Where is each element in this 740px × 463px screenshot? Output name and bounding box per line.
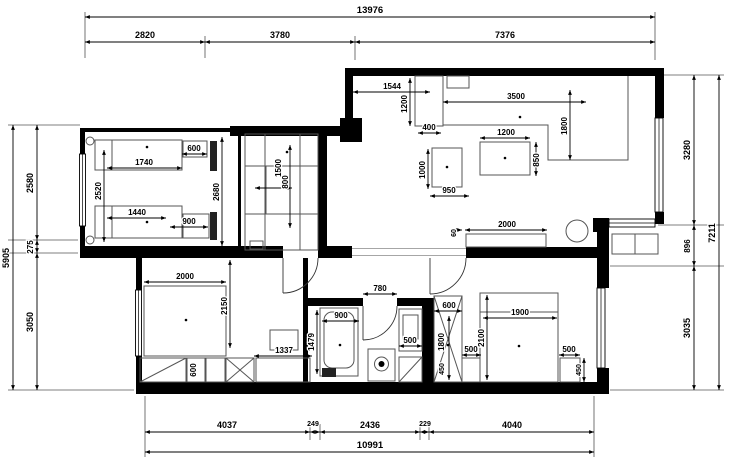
pipe: [86, 137, 94, 145]
floor-plan-canvas: 13976 2820 3780 7376 5905 2580 275 3050 …: [0, 0, 740, 463]
sideboard: [466, 234, 546, 247]
dim-left-seg3: 3050: [25, 312, 35, 332]
dim-kid-desk: 600: [187, 144, 201, 153]
dim-bottom-seg2: 249: [307, 421, 319, 428]
dim-right-seg3: 3035: [682, 318, 692, 338]
dim-fridge-width: 400: [422, 123, 436, 132]
dim-bottom-seg1: 4037: [217, 420, 237, 430]
window: [80, 154, 86, 226]
bath-cabinet-diag: [399, 357, 422, 382]
dim-kid-desk2: 900: [182, 217, 196, 226]
nightstand: [462, 358, 480, 382]
wall-segment: [593, 218, 609, 232]
wall-segment: [345, 68, 664, 76]
furniture: [86, 76, 658, 382]
bed: [144, 286, 226, 356]
dim-bottom-total: 10991: [357, 440, 384, 451]
dim-top-seg3: 7376: [495, 30, 515, 40]
vent-shaft: [447, 76, 469, 88]
dim-tub-width: 900: [334, 311, 348, 320]
dim-closet-turning: 1500: [274, 159, 283, 177]
dim-left-seg2: 275: [26, 240, 35, 254]
bathtub-inner: [324, 312, 354, 368]
dim-unit-len: 1000: [418, 161, 427, 179]
windows: [80, 118, 664, 368]
wall-segment: [397, 298, 422, 306]
window: [609, 219, 655, 227]
dim-unit-width: 950: [442, 186, 456, 195]
window: [597, 288, 605, 368]
wall-segment: [80, 246, 283, 258]
tub-end: [322, 368, 336, 377]
walls: [80, 68, 664, 394]
bed: [480, 293, 558, 382]
wall-segment: [80, 128, 85, 154]
floor-plan-drawing: 13976 2820 3780 7376 5905 2580 275 3050 …: [0, 0, 740, 463]
wall-segment: [136, 382, 608, 394]
dim-kid-width: 2520: [94, 182, 103, 200]
fridge: [415, 76, 443, 126]
wall-segment: [80, 128, 240, 132]
radiator: [210, 141, 217, 171]
dim-counter-leg: 1800: [560, 117, 569, 135]
wall-segment: [303, 258, 308, 382]
round-table: [566, 220, 588, 242]
dim-bottom-seg4: 229: [419, 421, 431, 428]
dim-bottom-seg3: 2436: [360, 420, 380, 430]
dim-bl-wardrobe: 600: [189, 363, 198, 377]
window: [655, 118, 663, 212]
dim-gap: 60: [451, 229, 458, 237]
door-bedroom-right: [430, 258, 466, 294]
dim-kitchen-entry: 1544: [383, 82, 401, 91]
dim-right-total: 7211: [707, 223, 717, 243]
window: [136, 290, 142, 356]
wall-segment: [238, 132, 241, 248]
dim-left-total: 5905: [1, 248, 11, 268]
pipe: [86, 236, 94, 244]
dim-table-width: 1200: [497, 128, 515, 137]
dim-kid-bed1: 1740: [135, 158, 153, 167]
wall-segment: [655, 212, 664, 224]
dim-bl-bed-length: 2150: [220, 297, 229, 315]
dim-fridge-depth: 1200: [400, 95, 409, 113]
washer-door-center: [379, 361, 385, 367]
dim-br-bed-length: 2100: [477, 329, 486, 347]
dim-top-seg2: 3780: [270, 30, 290, 40]
dim-left-seg1: 2580: [25, 173, 35, 193]
wall-segment: [345, 68, 353, 130]
dim-br-bed-width: 1900: [511, 308, 529, 317]
wall-segment: [422, 298, 434, 382]
dim-top-total: 13976: [357, 5, 383, 16]
dim-br-wardrobe-length: 1800: [437, 333, 446, 351]
dim-sideboard: 2000: [498, 220, 516, 229]
dim-table-depth: 850: [532, 153, 541, 167]
dim-br-wardrobe-side: 450: [439, 363, 446, 375]
dim-br-nightstand-right: 500: [562, 345, 576, 354]
wall-segment: [597, 368, 609, 394]
dim-right-seg2: 896: [683, 239, 692, 253]
wall-segment: [318, 132, 327, 258]
closet-shelving: [245, 134, 318, 250]
wardrobe-row: [140, 358, 310, 382]
kitchen-counter: [443, 76, 628, 160]
dim-basin: 500: [403, 336, 417, 345]
dim-br-nightstand-depth: 450: [576, 364, 583, 376]
door-bedroom-left: [283, 258, 318, 293]
dim-br-wardrobe-width: 600: [442, 301, 456, 310]
door-bathroom: [363, 306, 397, 340]
wall-segment: [136, 252, 142, 290]
dim-top-seg1: 2820: [135, 30, 155, 40]
dim-bl-dresser: 1337: [275, 346, 293, 355]
dim-bath-door: 780: [373, 284, 387, 293]
wall-segment: [308, 298, 363, 306]
dim-bl-bed-width: 2000: [176, 272, 194, 281]
dim-kid-length: 2680: [212, 183, 221, 201]
dim-closet-depth: 800: [281, 175, 290, 189]
radiator: [210, 212, 217, 240]
dim-tub-length: 1479: [307, 333, 316, 351]
dim-right-seg1: 3280: [682, 140, 692, 160]
dim-bottom-seg5: 4040: [502, 420, 522, 430]
wall-segment: [466, 247, 600, 258]
wall-segment: [318, 246, 352, 258]
dim-counter-len: 3500: [507, 92, 525, 101]
dim-kid-bed2: 1440: [128, 208, 146, 217]
